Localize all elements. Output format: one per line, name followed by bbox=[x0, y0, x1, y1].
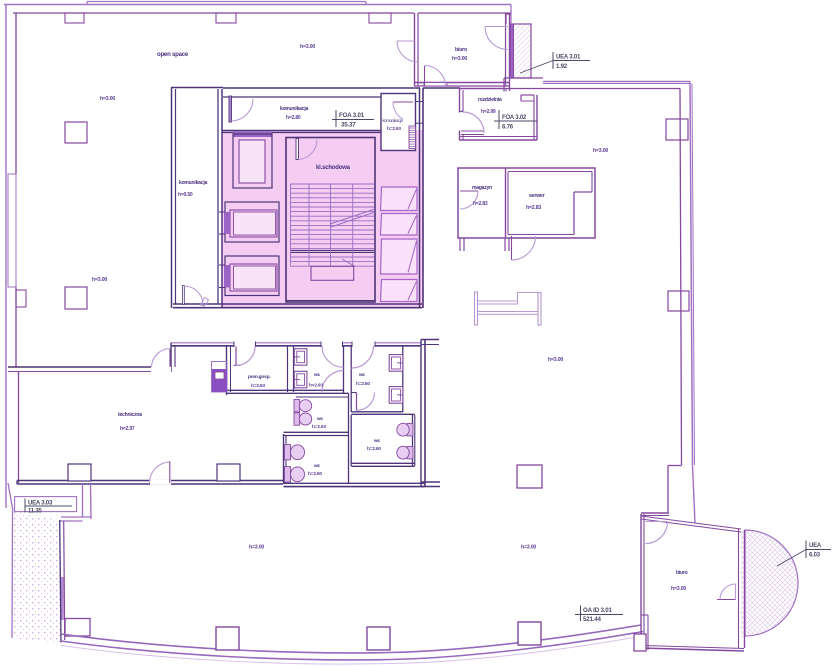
svg-text:h=3.00: h=3.00 bbox=[671, 586, 686, 592]
svg-text:35.37: 35.37 bbox=[341, 122, 356, 129]
svg-text:wc: wc bbox=[313, 464, 321, 469]
svg-text:biuro: biuro bbox=[676, 570, 688, 576]
svg-text:OA ID 3.01: OA ID 3.01 bbox=[583, 607, 612, 614]
svg-text:komunikacja: komunikacja bbox=[179, 180, 208, 186]
svg-text:wc: wc bbox=[358, 373, 366, 378]
svg-text:11.35: 11.35 bbox=[28, 509, 43, 515]
svg-text:wc: wc bbox=[316, 417, 324, 422]
svg-text:h=2.99: h=2.99 bbox=[481, 109, 496, 115]
svg-text:6.03: 6.03 bbox=[809, 553, 821, 559]
svg-text:techniczna: techniczna bbox=[118, 412, 142, 418]
svg-text:komunikacja: komunikacja bbox=[280, 106, 309, 112]
svg-text:FOA 3.02: FOA 3.02 bbox=[502, 115, 527, 121]
svg-text:wc: wc bbox=[373, 439, 381, 444]
svg-text:komunikacja: komunikacja bbox=[383, 118, 404, 123]
svg-text:h=2.93: h=2.93 bbox=[387, 126, 401, 132]
svg-text:h=3.00: h=3.00 bbox=[521, 545, 536, 551]
svg-text:kl.schodowa: kl.schodowa bbox=[316, 165, 351, 171]
svg-text:UEA 3.01: UEA 3.01 bbox=[556, 55, 581, 61]
svg-text:h=3.00: h=3.00 bbox=[593, 148, 608, 154]
svg-text:wc: wc bbox=[313, 373, 321, 378]
svg-text:1.92: 1.92 bbox=[556, 64, 568, 70]
svg-text:biuro: biuro bbox=[455, 47, 467, 53]
svg-text:serwer: serwer bbox=[529, 193, 545, 199]
svg-text:open space: open space bbox=[157, 52, 189, 58]
svg-text:FOA 3.01: FOA 3.01 bbox=[339, 112, 365, 119]
svg-text:h=3.00: h=3.00 bbox=[249, 545, 264, 551]
svg-text:rozdzielnia: rozdzielnia bbox=[478, 97, 502, 103]
svg-text:h=3.00: h=3.00 bbox=[100, 96, 115, 102]
svg-text:521.44: 521.44 bbox=[583, 616, 601, 623]
svg-text:6.76: 6.76 bbox=[502, 125, 514, 131]
svg-text:h=2.60: h=2.60 bbox=[308, 471, 322, 477]
svg-text:h=2.93: h=2.93 bbox=[309, 383, 323, 389]
svg-text:h=2.83: h=2.83 bbox=[526, 205, 541, 211]
svg-text:h=0.50: h=0.50 bbox=[178, 192, 193, 198]
svg-text:h=2.83: h=2.83 bbox=[473, 201, 488, 207]
svg-text:h=2.97: h=2.97 bbox=[120, 426, 135, 432]
svg-text:magazyn: magazyn bbox=[472, 185, 492, 191]
svg-text:h=3.00: h=3.00 bbox=[92, 277, 107, 283]
svg-text:h=2.60: h=2.60 bbox=[356, 381, 370, 387]
svg-text:h=3.00: h=3.00 bbox=[300, 44, 315, 50]
svg-text:h=2.60: h=2.60 bbox=[367, 446, 381, 452]
svg-text:h=2.93: h=2.93 bbox=[312, 424, 326, 430]
svg-text:h=3.00: h=3.00 bbox=[452, 56, 467, 62]
svg-text:h=3.00: h=3.00 bbox=[548, 357, 563, 363]
svg-text:UEA: UEA bbox=[809, 543, 822, 549]
svg-text:h=2.93: h=2.93 bbox=[251, 383, 265, 389]
svg-text:h=2.80: h=2.80 bbox=[286, 115, 301, 121]
svg-text:pom.gosp.: pom.gosp. bbox=[248, 375, 270, 380]
